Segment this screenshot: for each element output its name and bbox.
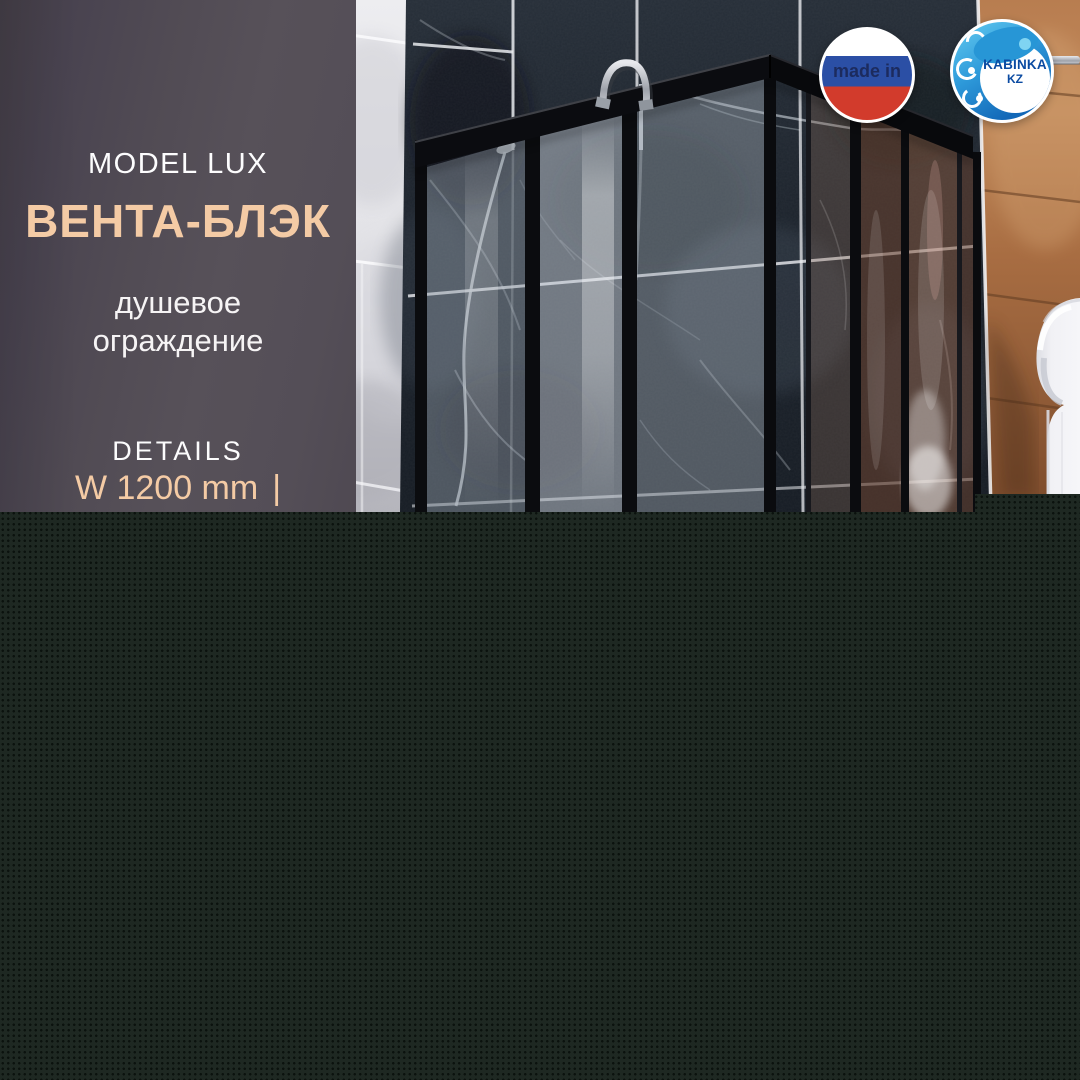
details-label: DETAILS (0, 436, 356, 467)
dimension-width-value: W 1200 mm (75, 469, 258, 507)
product-card: MODEL LUX ВЕНТА-БЛЭК душевое ограждение … (0, 0, 1080, 1080)
ornament-dot-icon (976, 95, 983, 102)
made-in-label: made in (822, 56, 912, 87)
product-name: ВЕНТА-БЛЭК (0, 194, 356, 248)
kabinka-kz-logo: KABINKA KZ (950, 19, 1054, 123)
kazakh-ornament-icon (954, 56, 981, 83)
kabinka-wordmark: KABINKA KZ (980, 58, 1050, 86)
wave-curl-icon (1019, 38, 1031, 50)
subtitle-line-1: душевое (0, 284, 356, 322)
product-subtitle: душевое ограждение (0, 284, 356, 360)
made-in-russia-badge: made in (819, 27, 915, 123)
model-label: MODEL LUX (0, 148, 356, 181)
dimension-width: W 1200 mm| (0, 469, 356, 508)
kabinka-title: KABINKA (980, 58, 1050, 73)
footer-background (0, 494, 1080, 1080)
kabinka-region: KZ (980, 73, 1050, 86)
dimension-separator: | (272, 469, 281, 507)
ornament-dot-icon (968, 67, 975, 74)
info-panel: MODEL LUX ВЕНТА-БЛЭК душевое ограждение … (0, 0, 356, 512)
subtitle-line-2: ограждение (0, 322, 356, 360)
